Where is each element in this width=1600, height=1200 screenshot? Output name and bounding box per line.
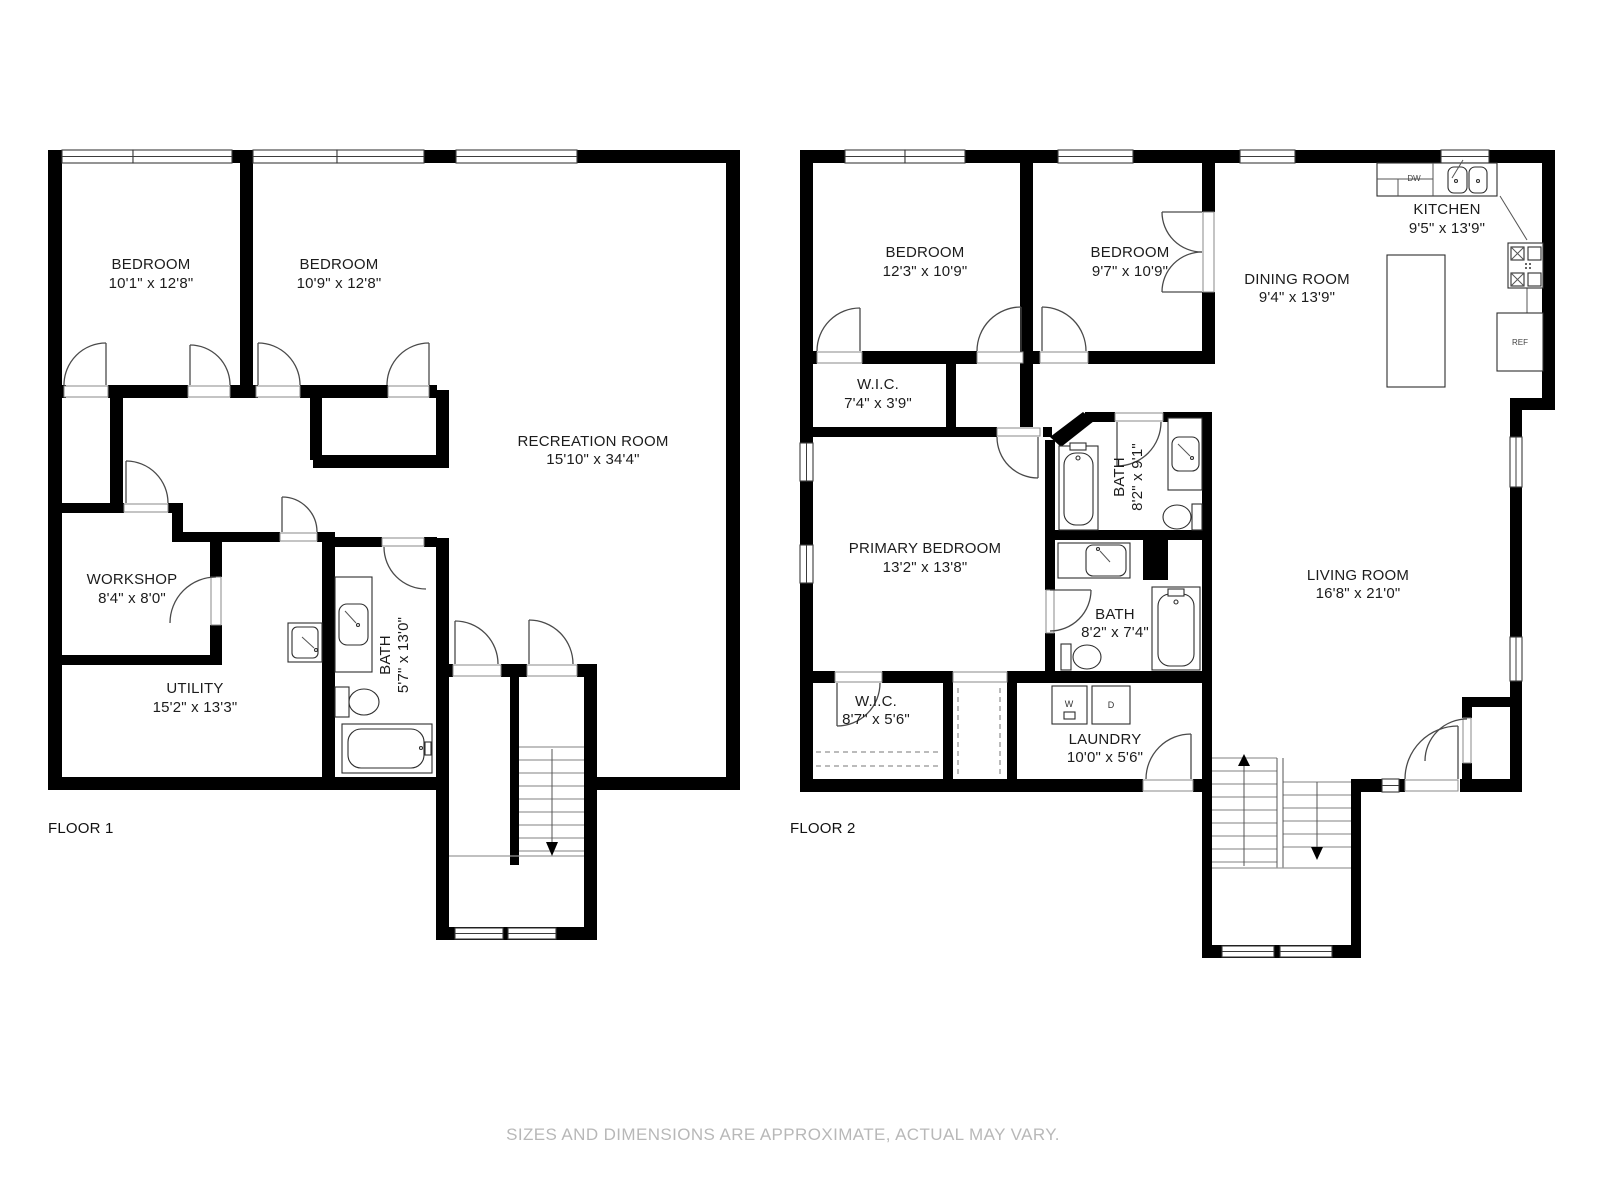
- dishwasher-icon: DW: [1407, 174, 1421, 183]
- floor2-title: FLOOR 2: [790, 820, 856, 837]
- room-dims-utility: 15'2" x 13'3": [153, 699, 238, 716]
- window-icon: [1382, 779, 1399, 792]
- door-arc: [455, 621, 498, 664]
- window-icon: [456, 150, 577, 163]
- floor1-plan: BEDROOM 10'1" x 12'8" BEDROOM 10'9" x 12…: [48, 150, 740, 940]
- room-label-wic2: W.I.C.: [855, 693, 897, 710]
- room-dims-f2-bath-1: 8'2" x 9'1": [1129, 443, 1146, 511]
- room-label-f1-bedroom-1: BEDROOM: [112, 256, 191, 273]
- room-dims-f1-bath: 5'7" x 13'0": [395, 617, 412, 693]
- room-dims-recreation: 15'10" x 34'4": [546, 451, 639, 468]
- window-icon: [800, 545, 813, 583]
- door-arc: [126, 461, 168, 503]
- room-dims-dining: 9'4" x 13'9": [1259, 289, 1335, 306]
- room-label-dining: DINING ROOM: [1244, 271, 1350, 288]
- window-icon: [905, 150, 965, 163]
- room-dims-laundry: 10'0" x 5'6": [1067, 749, 1143, 766]
- room-label-f1-bath: BATH: [377, 635, 394, 675]
- bathtub-icon: [1059, 443, 1098, 530]
- room-label-f2-bedroom-2: BEDROOM: [1091, 244, 1170, 261]
- window-icon: [1058, 150, 1133, 163]
- room-label-laundry: LAUNDRY: [1069, 731, 1142, 748]
- room-dims-f1-bedroom-2: 10'9" x 12'8": [297, 275, 382, 292]
- utility-sink-icon: [288, 623, 322, 662]
- room-label-recreation: RECREATION ROOM: [517, 433, 668, 450]
- room-label-f2-bedroom-1: BEDROOM: [886, 244, 965, 261]
- door-arc: [529, 620, 573, 664]
- room-label-f2-bath-2: BATH: [1095, 606, 1135, 623]
- kitchen-island: [1387, 255, 1445, 387]
- floor2-labels: BEDROOM 12'3" x 10'9" BEDROOM 9'7" x 10'…: [790, 201, 1485, 837]
- bathroom-sink-icon: [335, 577, 372, 672]
- bathroom-sink-icon: [1168, 418, 1202, 490]
- room-dims-kitchen: 9'5" x 13'9": [1409, 220, 1485, 237]
- room-label-kitchen: KITCHEN: [1413, 201, 1480, 218]
- disclaimer-text: SIZES AND DIMENSIONS ARE APPROXIMATE, AC…: [506, 1125, 1060, 1144]
- toilet-icon: [335, 687, 379, 717]
- room-label-workshop: WORKSHOP: [87, 571, 178, 588]
- window-icon: [253, 150, 337, 163]
- door-arc: [190, 345, 230, 385]
- door-arc: [282, 497, 317, 532]
- window-icon: [508, 928, 556, 939]
- window-icon: [845, 150, 905, 163]
- bathroom-sink-icon: [1058, 543, 1130, 578]
- window-icon: [337, 150, 424, 163]
- door-arc: [384, 547, 426, 589]
- door-arc: [1405, 726, 1458, 779]
- room-label-wic1: W.I.C.: [857, 376, 899, 393]
- window-icon: [1510, 437, 1522, 487]
- room-dims-wic1: 7'4" x 3'9": [844, 395, 912, 412]
- door-arc: [1146, 734, 1191, 779]
- bathtub-icon: [1152, 587, 1200, 670]
- window-icon: [800, 443, 813, 481]
- window-icon: [133, 150, 232, 163]
- room-label-primary: PRIMARY BEDROOM: [849, 540, 1001, 557]
- bathtub-icon: [342, 724, 432, 773]
- room-label-living: LIVING ROOM: [1307, 567, 1409, 584]
- room-label-f2-bath-1: BATH: [1111, 457, 1128, 497]
- floor2-plan: DW REF W D BEDROOM 12'3" x 10'9": [790, 150, 1555, 958]
- room-dims-workshop: 8'4" x 8'0": [98, 590, 166, 607]
- stove-icon: [1508, 243, 1543, 288]
- door-arc: [817, 308, 860, 351]
- door-arc: [977, 307, 1021, 351]
- floorplan-diagram: BEDROOM 10'1" x 12'8" BEDROOM 10'9" x 12…: [0, 0, 1600, 1200]
- floor2-stairs-icon: [1212, 754, 1351, 868]
- window-icon: [1222, 946, 1274, 957]
- door-arc: [64, 343, 106, 385]
- refrigerator-label: REF: [1512, 338, 1528, 347]
- floor1-title: FLOOR 1: [48, 820, 114, 837]
- door-arc: [997, 437, 1038, 478]
- window-icon: [1240, 150, 1295, 163]
- door-arc: [1425, 719, 1467, 761]
- room-dims-f2-bath-2: 8'2" x 7'4": [1081, 624, 1149, 641]
- room-dims-primary: 13'2" x 13'8": [883, 559, 968, 576]
- room-label-f1-bedroom-2: BEDROOM: [300, 256, 379, 273]
- door-arc: [258, 343, 300, 385]
- toilet-icon: [1163, 504, 1202, 530]
- window-icon: [1510, 637, 1522, 681]
- floorplan-page: BEDROOM 10'1" x 12'8" BEDROOM 10'9" x 12…: [0, 0, 1600, 1200]
- floor2-closet-rods: [816, 688, 1000, 775]
- room-label-utility: UTILITY: [166, 680, 223, 697]
- room-dims-f2-bedroom-1: 12'3" x 10'9": [883, 263, 968, 280]
- toilet-icon: [1061, 644, 1101, 670]
- window-icon: [1441, 150, 1489, 163]
- door-arc: [1042, 307, 1086, 351]
- room-dims-living: 16'8" x 21'0": [1316, 585, 1401, 602]
- room-dims-f1-bedroom-1: 10'1" x 12'8": [109, 275, 194, 292]
- dryer-label: D: [1108, 700, 1115, 710]
- washer-label: W: [1065, 699, 1074, 709]
- window-icon: [455, 928, 503, 939]
- door-arc: [387, 343, 429, 385]
- room-dims-wic2: 8'7" x 5'6": [842, 711, 910, 728]
- window-icon: [62, 150, 133, 163]
- room-dims-f2-bedroom-2: 9'7" x 10'9": [1092, 263, 1168, 280]
- window-icon: [1280, 946, 1332, 957]
